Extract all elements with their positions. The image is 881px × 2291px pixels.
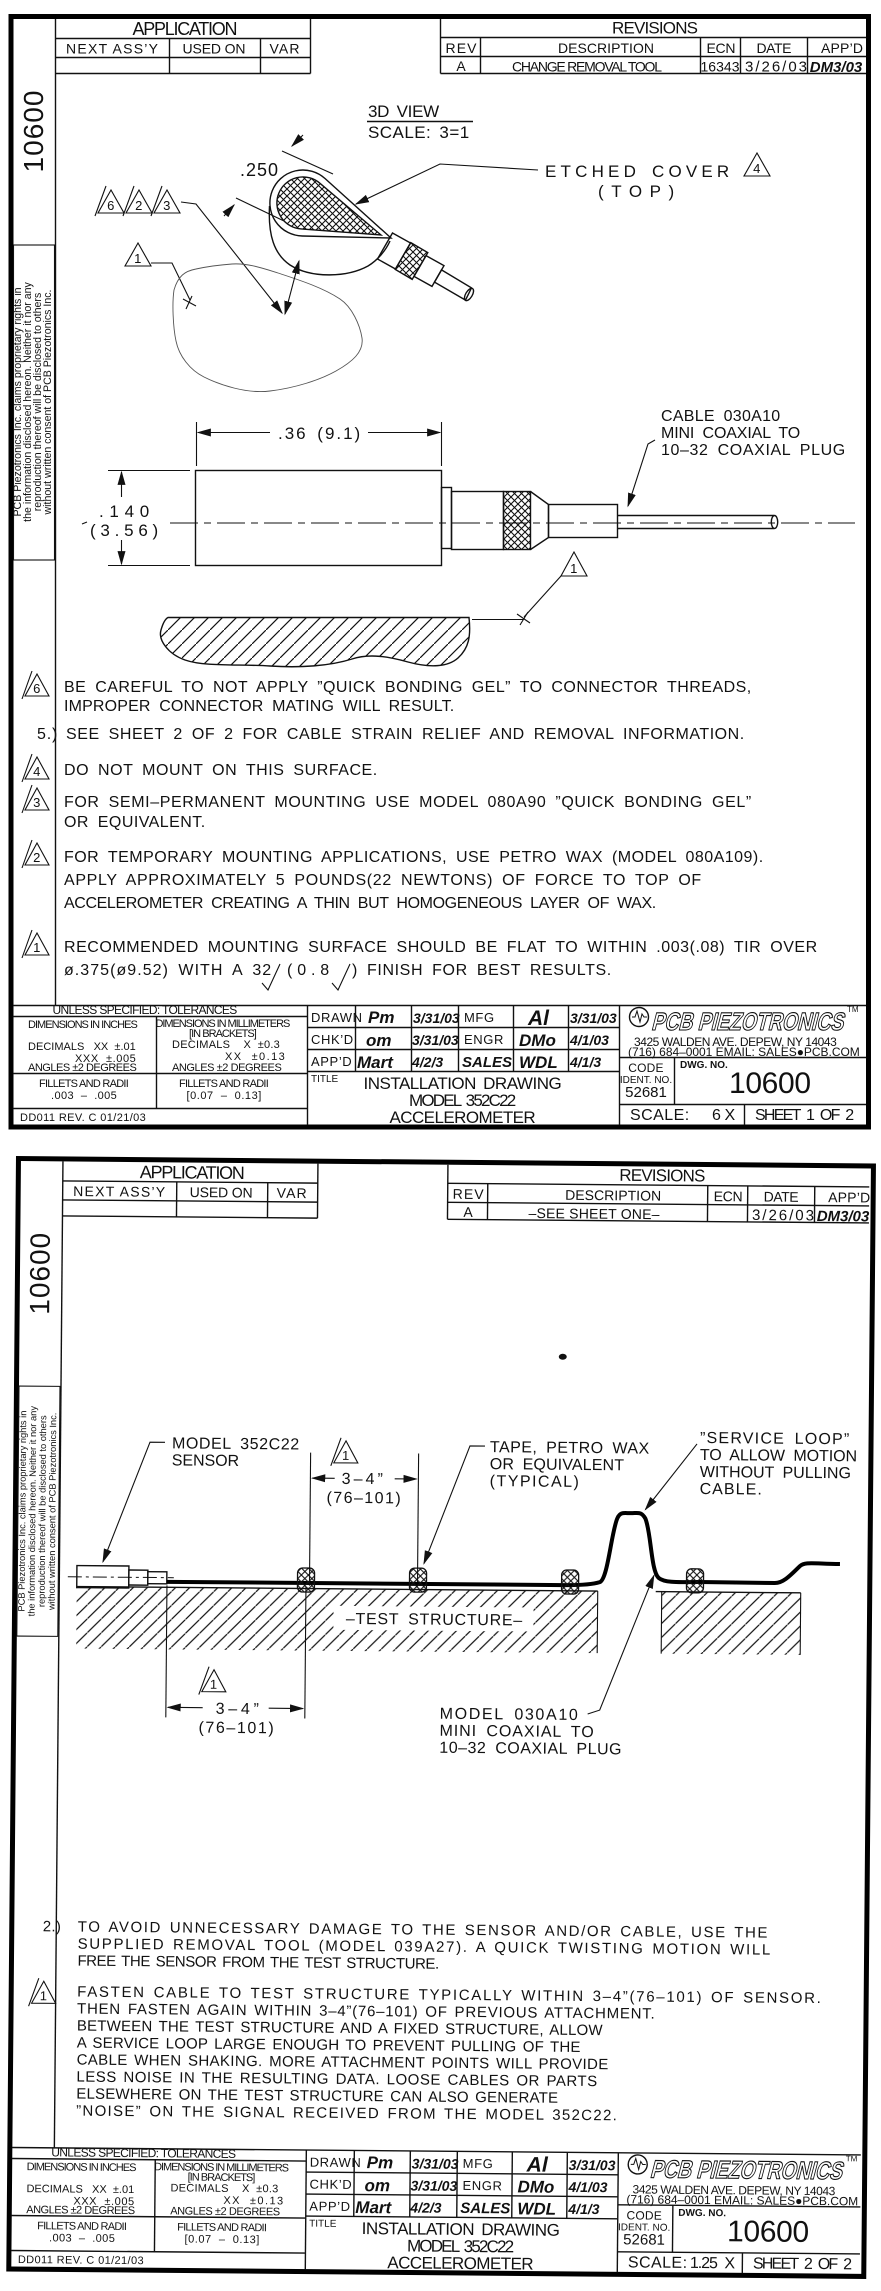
svg-text:om: om bbox=[366, 1031, 392, 1050]
svg-text:(0.8: (0.8 bbox=[287, 962, 330, 979]
svg-text:–TEST STRUCTURE–: –TEST STRUCTURE– bbox=[346, 1611, 523, 1630]
svg-text:DATE: DATE bbox=[757, 40, 792, 56]
svg-text:5.): 5.) bbox=[37, 726, 58, 743]
svg-text:Pm: Pm bbox=[368, 1008, 394, 1027]
svg-text:SCALE: 3=1: SCALE: 3=1 bbox=[368, 123, 470, 142]
svg-text:1: 1 bbox=[134, 251, 142, 266]
svg-text:6: 6 bbox=[107, 198, 115, 213]
svg-text:BE CAREFUL TO NOT APPLY ”QUICK: BE CAREFUL TO NOT APPLY ”QUICK BONDING G… bbox=[64, 679, 752, 696]
svg-text:ACCELEROMETER: ACCELEROMETER bbox=[390, 1108, 537, 1127]
svg-text:3: 3 bbox=[33, 795, 41, 810]
svg-text:ANGLES ±2 DEGREES: ANGLES ±2 DEGREES bbox=[26, 2204, 135, 2217]
svg-text:DECIMALS XX ±.01: DECIMALS XX ±.01 bbox=[26, 2183, 134, 2196]
svg-text:DWG. NO.: DWG. NO. bbox=[680, 1060, 728, 1071]
svg-text:CABLE 030A10: CABLE 030A10 bbox=[661, 408, 781, 425]
svg-text:4/1/03: 4/1/03 bbox=[569, 1032, 609, 1048]
svg-text:10–32 COAXIAL PLUG: 10–32 COAXIAL PLUG bbox=[439, 1740, 622, 1759]
svg-text:APP’D: APP’D bbox=[309, 2199, 350, 2214]
svg-text:SCALE:: SCALE: bbox=[628, 2254, 688, 2272]
svg-text:DESCRIPTION: DESCRIPTION bbox=[558, 40, 654, 56]
svg-text:3D VIEW: 3D VIEW bbox=[368, 102, 440, 121]
svg-text:3/31/03: 3/31/03 bbox=[410, 2177, 457, 2193]
svg-text:10600: 10600 bbox=[24, 1232, 56, 1315]
svg-text:TITLE: TITLE bbox=[311, 1074, 339, 1085]
svg-text:4: 4 bbox=[33, 764, 41, 779]
svg-text:REV: REV bbox=[446, 40, 478, 56]
svg-text:UNLESS SPECIFIED: TOLERANCES: UNLESS SPECIFIED: TOLERANCES bbox=[51, 2145, 236, 2161]
svg-text:DMo: DMo bbox=[519, 1031, 556, 1050]
svg-text:DRAWN: DRAWN bbox=[310, 2155, 362, 2170]
svg-text:.250: .250 bbox=[240, 160, 278, 180]
svg-text:(3.56): (3.56) bbox=[90, 521, 159, 540]
svg-text:Al: Al bbox=[527, 1007, 550, 1030]
svg-text:DIMENSIONS IN INCHES: DIMENSIONS IN INCHES bbox=[27, 2161, 137, 2174]
svg-text:FOR TEMPORARY MOUNTING APPLICA: FOR TEMPORARY MOUNTING APPLICATIONS, USE… bbox=[64, 849, 764, 866]
svg-text:(TYPICAL): (TYPICAL) bbox=[490, 1473, 580, 1491]
svg-text:WDL: WDL bbox=[517, 2199, 556, 2218]
svg-text:4/1/3: 4/1/3 bbox=[569, 1054, 601, 1070]
svg-text:2: 2 bbox=[33, 850, 41, 865]
svg-text:FILLETS AND RADII: FILLETS AND RADII bbox=[39, 1078, 129, 1090]
svg-text:MINI COAXIAL TO: MINI COAXIAL TO bbox=[439, 1723, 594, 1741]
svg-text:PCB PIEZOTRONICS: PCB PIEZOTRONICS bbox=[650, 1008, 849, 1036]
svg-text:OR EQUIVALENT: OR EQUIVALENT bbox=[490, 1456, 625, 1474]
svg-text:[0.07 – 0.13]: [0.07 – 0.13] bbox=[187, 1090, 262, 1102]
svg-text:3/31/03: 3/31/03 bbox=[412, 1032, 459, 1048]
svg-text:SHEET 2 OF 2: SHEET 2 OF 2 bbox=[753, 2255, 853, 2273]
svg-text:[0.07 – 0.13]: [0.07 – 0.13] bbox=[184, 2234, 259, 2247]
svg-text:(76–101): (76–101) bbox=[326, 1490, 401, 1508]
svg-text:ETCHED COVER: ETCHED COVER bbox=[545, 162, 730, 181]
svg-text:FILLETS AND RADII: FILLETS AND RADII bbox=[37, 2220, 127, 2233]
svg-text:.36 (9.1): .36 (9.1) bbox=[278, 424, 361, 443]
svg-text:Al: Al bbox=[526, 2153, 549, 2176]
svg-text:FREE THE SENSOR FROM THE TEST: FREE THE SENSOR FROM THE TEST STRUCTURE. bbox=[77, 1953, 439, 1973]
svg-text:1: 1 bbox=[33, 940, 41, 955]
svg-text:3–4”: 3–4” bbox=[342, 1471, 384, 1488]
svg-text:VAR: VAR bbox=[270, 41, 300, 57]
svg-text:2: 2 bbox=[135, 198, 143, 213]
svg-text:APPLY APPROXIMATELY 5 POUNDS(2: APPLY APPROXIMATELY 5 POUNDS(22 NEWTONS)… bbox=[64, 872, 702, 889]
svg-text:(716) 684–0001 EMAIL: SALES●PC: (716) 684–0001 EMAIL: SALES●PCB.COM bbox=[628, 1045, 860, 1059]
svg-text:PCB PIEZOTRONICS: PCB PIEZOTRONICS bbox=[648, 2156, 847, 2185]
svg-text:REVISIONS: REVISIONS bbox=[619, 1166, 705, 1186]
svg-text:TITLE: TITLE bbox=[309, 2219, 337, 2230]
svg-text:.003 – .005: .003 – .005 bbox=[49, 2232, 115, 2245]
svg-text:(716) 684–0001 EMAIL: SALES●PC: (716) 684–0001 EMAIL: SALES●PCB.COM bbox=[626, 2192, 858, 2208]
svg-text:FOR SEMI–PERMANENT MOUNTING US: FOR SEMI–PERMANENT MOUNTING USE MODEL 08… bbox=[64, 794, 752, 811]
svg-text:CODE: CODE bbox=[628, 1061, 663, 1075]
svg-text:IMPROPER CONNECTOR MATING WILL: IMPROPER CONNECTOR MATING WILL RESULT. bbox=[64, 698, 455, 715]
svg-text:USED ON: USED ON bbox=[183, 41, 246, 57]
svg-text:ANGLES ±2 DEGREES: ANGLES ±2 DEGREES bbox=[170, 2205, 280, 2218]
svg-text:MINI COAXIAL TO: MINI COAXIAL TO bbox=[661, 425, 801, 442]
svg-text:3–4”: 3–4” bbox=[216, 1701, 260, 1718]
svg-text:ECN: ECN bbox=[714, 1188, 743, 1204]
svg-text:–SEE SHEET ONE–: –SEE SHEET ONE– bbox=[528, 1205, 659, 1222]
svg-text:.140: .140 bbox=[99, 502, 150, 521]
svg-text:FILLETS AND RADII: FILLETS AND RADII bbox=[179, 1078, 269, 1090]
svg-text:DESCRIPTION: DESCRIPTION bbox=[565, 1187, 661, 1204]
svg-text:2.): 2.) bbox=[43, 1918, 62, 1935]
svg-text:10600: 10600 bbox=[18, 90, 49, 173]
svg-text:10600: 10600 bbox=[727, 2215, 809, 2249]
svg-text:TM: TM bbox=[846, 2154, 858, 2163]
svg-text:ANGLES ±2 DEGREES: ANGLES ±2 DEGREES bbox=[28, 1062, 137, 1074]
svg-text:4/2/3: 4/2/3 bbox=[411, 1054, 443, 1070]
svg-text:SALES: SALES bbox=[460, 2200, 510, 2217]
svg-text:WITHOUT PULLING: WITHOUT PULLING bbox=[700, 1464, 852, 1482]
svg-text:REV: REV bbox=[453, 1186, 485, 1202]
svg-text:MODEL 352C22: MODEL 352C22 bbox=[172, 1435, 300, 1453]
svg-text:APPLICATION: APPLICATION bbox=[133, 19, 238, 39]
svg-text:DD011 REV. C 01/21/03: DD011 REV. C 01/21/03 bbox=[18, 2254, 144, 2267]
svg-text:DMo: DMo bbox=[517, 2177, 554, 2196]
svg-text:DO NOT MOUNT ON THIS SURFACE.: DO NOT MOUNT ON THIS SURFACE. bbox=[64, 762, 378, 779]
svg-text:APP’D: APP’D bbox=[311, 1054, 352, 1069]
svg-text:UNLESS SPECIFIED: TOLERANCES: UNLESS SPECIFIED: TOLERANCES bbox=[53, 1003, 238, 1017]
svg-text:DECIMALS X ±0.3: DECIMALS X ±0.3 bbox=[170, 2182, 278, 2195]
svg-text:) FINISH FOR BEST RESULTS.: ) FINISH FOR BEST RESULTS. bbox=[352, 962, 612, 979]
svg-text:CHK’D: CHK’D bbox=[309, 2177, 352, 2192]
svg-text:CODE: CODE bbox=[626, 2208, 662, 2222]
svg-text:WDL: WDL bbox=[519, 1053, 558, 1072]
svg-text:ø.375(ø9.52) WITH A 32: ø.375(ø9.52) WITH A 32 bbox=[64, 962, 272, 979]
svg-text:.003 – .005: .003 – .005 bbox=[51, 1090, 117, 1102]
svg-text:A: A bbox=[456, 58, 466, 74]
svg-text:RECOMMENDED MOUNTING SURFACE S: RECOMMENDED MOUNTING SURFACE SHOULD BE F… bbox=[64, 939, 818, 956]
svg-text:APPLICATION: APPLICATION bbox=[140, 1162, 245, 1183]
svg-text:OR EQUIVALENT.: OR EQUIVALENT. bbox=[64, 814, 206, 831]
svg-text:without written consent of PCB: without written consent of PCB Piezotron… bbox=[42, 290, 54, 516]
svg-text:10600: 10600 bbox=[729, 1067, 811, 1100]
svg-text:TO ALLOW MOTION: TO ALLOW MOTION bbox=[700, 1447, 858, 1465]
svg-text:1: 1 bbox=[342, 1448, 350, 1463]
svg-text:SHEET 1 OF 2: SHEET 1 OF 2 bbox=[755, 1107, 855, 1124]
svg-text:DIMENSIONS IN INCHES: DIMENSIONS IN INCHES bbox=[28, 1019, 138, 1031]
svg-text:APP’D: APP’D bbox=[821, 40, 863, 56]
svg-text:52681: 52681 bbox=[625, 1084, 667, 1101]
svg-text:CHK’D: CHK’D bbox=[311, 1032, 354, 1047]
svg-text:ECN: ECN bbox=[707, 40, 736, 56]
svg-text:ENGR: ENGR bbox=[462, 2178, 502, 2193]
svg-text:3/31/03: 3/31/03 bbox=[569, 2157, 616, 2173]
svg-text:3/31/03: 3/31/03 bbox=[570, 1010, 617, 1026]
svg-text:Pm: Pm bbox=[367, 2153, 394, 2172]
svg-text:4: 4 bbox=[753, 161, 761, 176]
svg-text:3/31/03: 3/31/03 bbox=[412, 2155, 459, 2171]
svg-text:MFG: MFG bbox=[464, 1010, 495, 1025]
svg-text:(76–101): (76–101) bbox=[198, 1720, 274, 1738]
svg-text:DRAWN: DRAWN bbox=[311, 1010, 363, 1025]
svg-text:CABLE.: CABLE. bbox=[700, 1481, 763, 1499]
svg-text:DM3/03: DM3/03 bbox=[810, 59, 863, 76]
svg-text:16343: 16343 bbox=[701, 59, 740, 75]
svg-text:TAPE, PETRO WAX: TAPE, PETRO WAX bbox=[490, 1439, 650, 1457]
svg-text:1.25 X: 1.25 X bbox=[690, 2255, 736, 2272]
svg-text:MFG: MFG bbox=[463, 2156, 494, 2171]
svg-text:1: 1 bbox=[210, 1677, 218, 1692]
svg-text:CHANGE REMOVAL TOOL: CHANGE REMOVAL TOOL bbox=[512, 59, 662, 75]
svg-text:Mart: Mart bbox=[355, 2198, 392, 2217]
svg-text:3/31/03: 3/31/03 bbox=[413, 1010, 460, 1026]
svg-text:SEE SHEET 2 OF 2 FOR CABLE STR: SEE SHEET 2 OF 2 FOR CABLE STRAIN RELIEF… bbox=[66, 726, 745, 743]
svg-text:USED ON: USED ON bbox=[190, 1184, 253, 1201]
svg-text:SCALE:: SCALE: bbox=[630, 1107, 690, 1124]
svg-text:52681: 52681 bbox=[623, 2231, 665, 2248]
svg-text:FILLETS AND RADII: FILLETS AND RADII bbox=[177, 2221, 267, 2234]
svg-text:ANGLES ±2 DEGREES: ANGLES ±2 DEGREES bbox=[172, 1062, 282, 1074]
svg-text:DECIMALS XX ±.01: DECIMALS XX ±.01 bbox=[28, 1041, 136, 1053]
svg-text:”SERVICE LOOP”: ”SERVICE LOOP” bbox=[700, 1430, 850, 1448]
svg-text:6: 6 bbox=[33, 681, 41, 696]
svg-text:DWG. NO.: DWG. NO. bbox=[678, 2208, 726, 2219]
svg-text:3: 3 bbox=[163, 198, 171, 213]
svg-text:SALES: SALES bbox=[462, 1054, 512, 1071]
svg-text:”NOISE” ON THE SIGNAL RECEIVED: ”NOISE” ON THE SIGNAL RECEIVED FROM THE … bbox=[76, 2103, 617, 2125]
svg-text:1: 1 bbox=[570, 561, 578, 576]
svg-text:1: 1 bbox=[40, 1988, 48, 2003]
svg-text:DECIMALS X ±0.3: DECIMALS X ±0.3 bbox=[172, 1039, 280, 1051]
svg-text:SENSOR: SENSOR bbox=[172, 1452, 240, 1470]
svg-text:(TOP): (TOP) bbox=[598, 182, 675, 201]
svg-text:APP’D: APP’D bbox=[828, 1189, 870, 1205]
svg-text:6 X: 6 X bbox=[712, 1107, 736, 1124]
svg-text:VAR: VAR bbox=[277, 1185, 307, 1201]
svg-text:om: om bbox=[364, 2176, 390, 2195]
svg-text:without written consent of PCB: without written consent of PCB Piezotron… bbox=[47, 1413, 59, 1611]
svg-text:MODEL 030A10: MODEL 030A10 bbox=[440, 1706, 579, 1724]
svg-text:Mart: Mart bbox=[357, 1053, 394, 1072]
svg-text:NEXT ASS’Y: NEXT ASS’Y bbox=[66, 41, 159, 57]
svg-text:ENGR: ENGR bbox=[464, 1032, 504, 1047]
svg-text:DATE: DATE bbox=[764, 1189, 799, 1205]
svg-text:TM: TM bbox=[847, 1005, 859, 1014]
svg-text:4/2/3: 4/2/3 bbox=[409, 2199, 441, 2215]
svg-text:ACCELEROMETER CREATING A THIN: ACCELEROMETER CREATING A THIN BUT HOMOGE… bbox=[64, 895, 657, 912]
svg-text:NEXT ASS’Y: NEXT ASS’Y bbox=[73, 1183, 166, 1200]
svg-text:ACCELEROMETER: ACCELEROMETER bbox=[387, 2253, 534, 2273]
svg-text:4/1/3: 4/1/3 bbox=[567, 2201, 599, 2217]
svg-text:10–32 COAXIAL PLUG: 10–32 COAXIAL PLUG bbox=[661, 442, 846, 459]
svg-text:DM3/03: DM3/03 bbox=[817, 1208, 870, 1225]
svg-text:4/1/03: 4/1/03 bbox=[567, 2179, 607, 2195]
svg-text:A: A bbox=[463, 1204, 473, 1220]
svg-text:DD011 REV. C 01/21/03: DD011 REV. C 01/21/03 bbox=[20, 1112, 146, 1124]
svg-text:REVISIONS: REVISIONS bbox=[612, 19, 698, 38]
